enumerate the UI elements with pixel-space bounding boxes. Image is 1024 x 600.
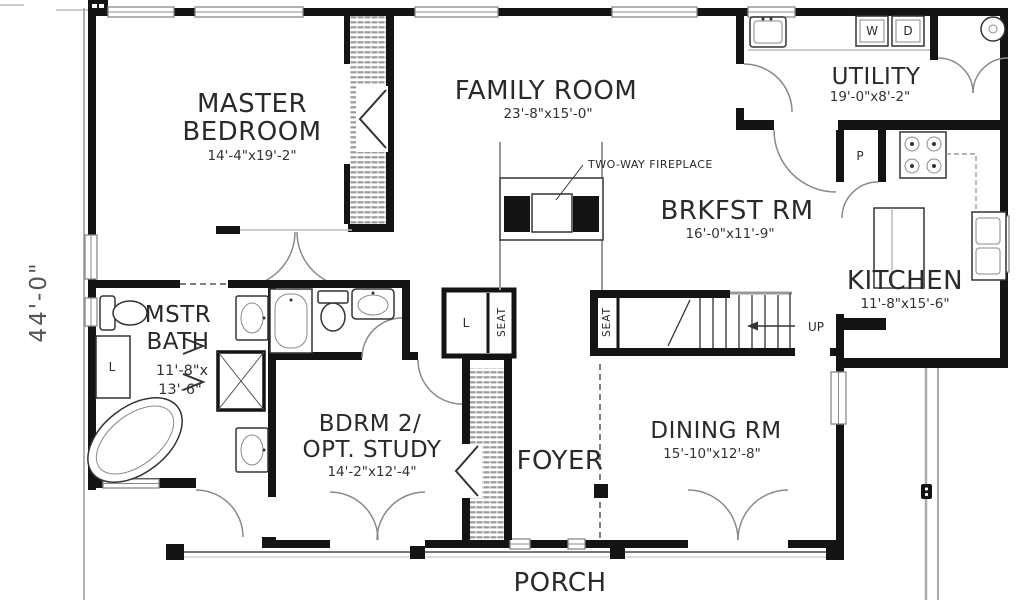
bdrm2-closet xyxy=(456,360,512,540)
hall-bath-fixtures xyxy=(270,289,394,353)
toilet-icon xyxy=(100,296,147,330)
linen-label: L xyxy=(109,360,116,374)
room-dims-mstr-bath-2: 13'-6" xyxy=(158,382,202,398)
room-label-bdrm2-2: OPT. STUDY xyxy=(303,437,442,463)
room-dims-bdrm2: 14'-2"x12'-4" xyxy=(327,464,416,480)
room-label-kitchen: KITCHEN xyxy=(847,266,963,296)
height-dimension-label: 44'-0" xyxy=(26,261,52,342)
seat-label: SEAT xyxy=(601,307,613,337)
kitchen-sink-icon xyxy=(972,212,1006,280)
fireplace-annotation: TWO-WAY FIREPLACE xyxy=(587,158,713,171)
stove-icon xyxy=(900,132,946,178)
room-dims-kitchen: 11'-8"x15'-6" xyxy=(860,296,949,312)
room-label-mstr-bath-2: BATH xyxy=(146,329,209,355)
room-label-mstr-bath-1: MSTR xyxy=(145,302,211,328)
room-dims-family-room: 23'-8"x15'-0" xyxy=(503,106,592,122)
pantry-label: P xyxy=(856,149,863,163)
shower-icon xyxy=(218,352,264,410)
sink-icon xyxy=(352,289,394,319)
floor-plan-drawing: MASTER BEDROOM 14'-4"x19'-2" FAMILY ROOM… xyxy=(0,0,1024,600)
vanity-sink-icon xyxy=(236,428,268,472)
up-arrow-icon xyxy=(747,322,795,331)
washer-label: W xyxy=(866,24,878,38)
room-dims-master-bedroom: 14'-4"x19'-2" xyxy=(207,148,296,164)
room-label-bdrm2-1: BDRM 2/ xyxy=(319,411,422,437)
staircase xyxy=(590,290,844,356)
water-heater-icon xyxy=(981,17,1005,41)
linen-label: L xyxy=(463,316,470,330)
room-label-master-bedroom-2: BEDROOM xyxy=(182,117,321,147)
utility-sink-icon xyxy=(750,17,786,47)
room-label-porch: PORCH xyxy=(513,568,606,598)
room-dims-dining: 15'-10"x12'-8" xyxy=(663,446,761,462)
room-label-brkfst: BRKFST RM xyxy=(660,196,813,226)
toilet-icon xyxy=(318,291,348,331)
dryer-label: D xyxy=(903,24,912,38)
room-label-master-bedroom-1: MASTER xyxy=(197,89,307,119)
floor-plan-canvas: MASTER BEDROOM 14'-4"x19'-2" FAMILY ROOM… xyxy=(0,0,1024,600)
room-dims-utility: 19'-0"x8'-2" xyxy=(830,89,911,105)
room-dims-brkfst: 16'-0"x11'-9" xyxy=(685,226,774,242)
room-label-dining: DINING RM xyxy=(650,418,781,444)
seat-label: SEAT xyxy=(496,307,508,337)
bathtub-icon xyxy=(270,289,312,353)
room-label-foyer: FOYER xyxy=(517,446,604,476)
master-closet xyxy=(344,16,394,232)
master-bedroom-doors xyxy=(216,226,352,287)
up-label: UP xyxy=(808,320,824,334)
room-dims-mstr-bath-1: 11'-8"x xyxy=(156,363,209,379)
room-label-family-room: FAMILY ROOM xyxy=(455,76,638,106)
porch-edge xyxy=(170,552,844,557)
kitchen-room xyxy=(836,130,1006,368)
dimension-line-right xyxy=(921,368,938,600)
vanity-sink-icon xyxy=(236,296,268,340)
room-label-utility: UTILITY xyxy=(832,64,921,90)
